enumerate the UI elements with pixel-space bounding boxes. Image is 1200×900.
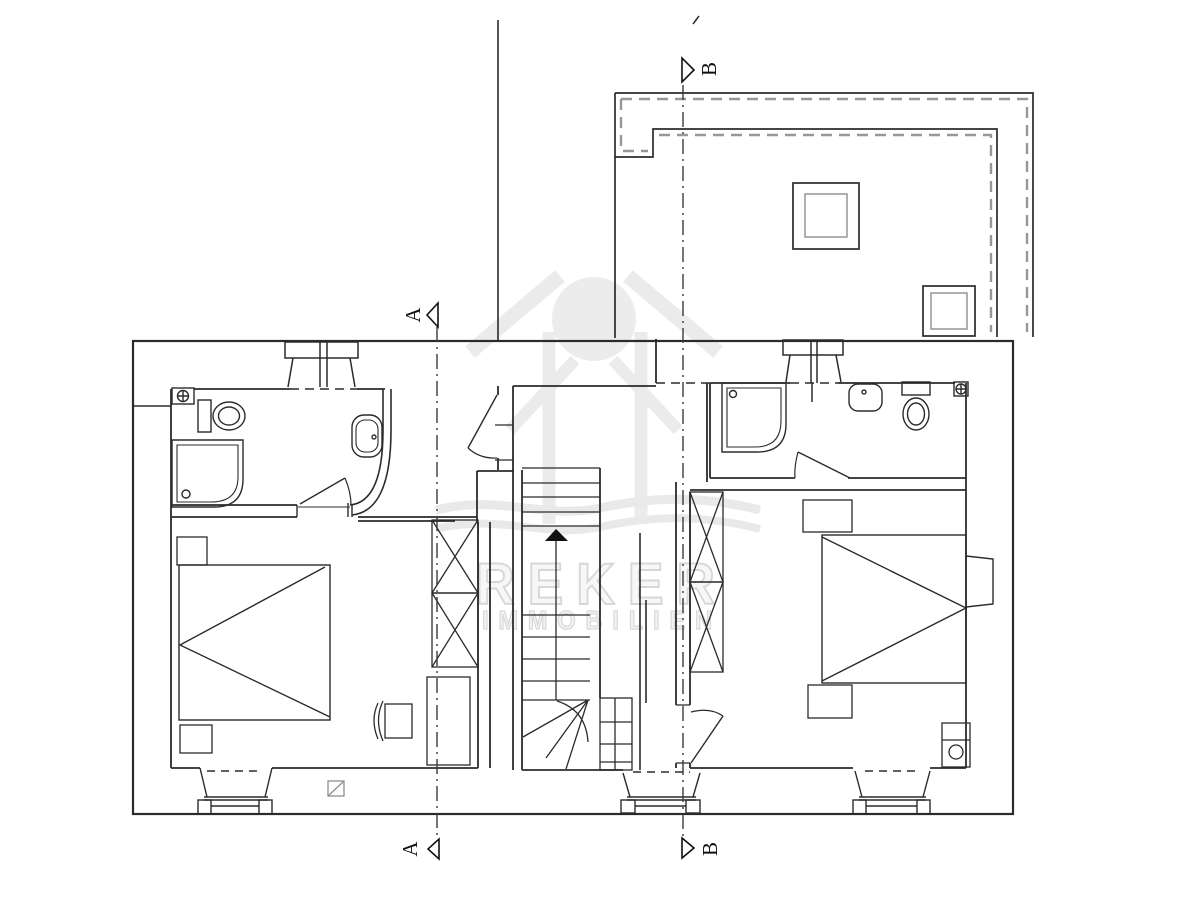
section-label-b: B [698,842,722,856]
window-bay-icon [621,773,700,813]
chimney-right-icon [783,340,843,402]
door-leaf [691,716,723,763]
section-marker-b-bottom: B [682,838,722,858]
bed-icon [822,535,966,683]
nightstand-icon [808,685,852,718]
chair-icon [374,701,412,741]
left-bathroom [171,388,391,517]
section-marker-a-bottom: A [398,839,439,859]
stair-landing-grid [600,698,632,770]
window-bay-icon [198,768,272,814]
right-bathroom [690,382,968,490]
stair-winder-icon [523,700,588,769]
left-bedroom [177,520,478,796]
washbasin-icon [849,384,882,411]
toilet-icon [902,382,930,430]
door-leaf [798,452,850,478]
nightstand-icon [177,537,207,565]
curved-wall-inner [350,389,383,505]
watermark-sun-icon [552,277,636,361]
section-label-b: B [697,62,721,76]
door-swing-icon [345,478,351,505]
window-bays [198,768,930,814]
shower-tray-icon [172,440,243,507]
skylight-icon [793,183,859,249]
watermark-tagline-text: IMMOBILIEN [482,605,722,635]
section-label-a: A [398,841,422,857]
toilet-icon [198,400,245,432]
section-lines: A A B B [398,16,722,859]
dresser-icon [427,677,470,765]
floor-plan-drawing: REKER IMMOBILIEN [0,0,1200,900]
floor-symbol-icon [328,781,344,796]
door-swing-icon [468,448,497,458]
roof-terrace [615,93,1033,338]
bathroom-west-wall [707,383,710,482]
section-label-a: A [401,307,425,323]
nightstand-icon [803,500,852,532]
floor-plan-page: REKER IMMOBILIEN [0,0,1200,900]
chimney-left-icon [285,342,358,387]
door-swing-icon [795,452,798,478]
bed-icon [179,565,330,720]
shower-tray-icon [722,383,786,452]
watermark-logo: REKER IMMOBILIEN [436,276,760,635]
door-swing-icon [691,710,723,716]
roof-hatch-box-icon [923,286,975,336]
nightstand-icon [180,725,212,753]
vent-crosshair-icon [172,388,194,404]
tick-mark [693,16,699,24]
washbasin-icon [352,415,382,457]
roof-hidden-lines [621,99,1027,332]
window-bay-icon [853,771,930,814]
wardrobe-cross-icon [432,520,478,667]
door-leaf [468,395,497,448]
door-leaf [300,478,345,504]
wall-niche [966,556,993,607]
section-marker-a-top: A [401,303,438,327]
right-bedroom [676,482,993,768]
section-marker-b-top: B [682,58,721,82]
